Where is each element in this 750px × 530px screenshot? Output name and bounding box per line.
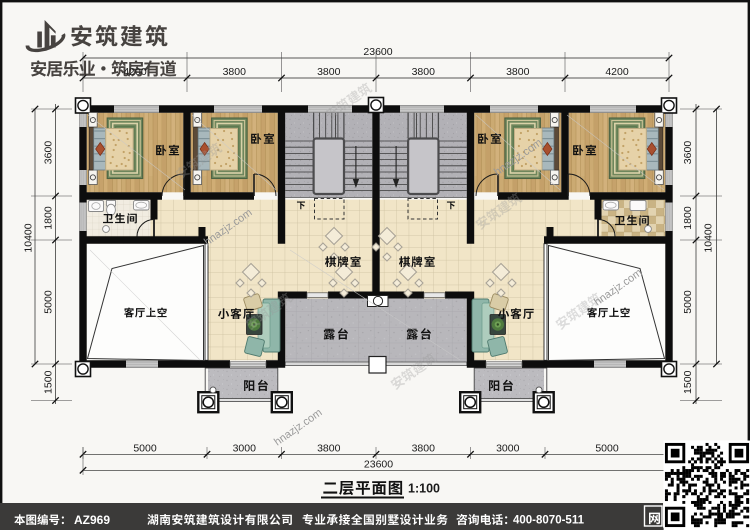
svg-text:1500: 1500	[682, 370, 694, 394]
svg-text:1:100: 1:100	[408, 482, 440, 496]
svg-text:10400: 10400	[23, 223, 35, 252]
svg-text:3800: 3800	[506, 66, 530, 78]
svg-text:3000: 3000	[496, 443, 520, 455]
svg-text:3800: 3800	[412, 443, 436, 455]
svg-text:400-8070-511: 400-8070-511	[513, 515, 585, 527]
svg-text:3800: 3800	[412, 66, 436, 78]
svg-text:4200: 4200	[605, 66, 629, 78]
svg-text:3600: 3600	[43, 141, 55, 165]
svg-text:1500: 1500	[43, 370, 55, 394]
svg-text:1800: 1800	[43, 206, 55, 230]
svg-text:3800: 3800	[317, 443, 341, 455]
svg-text:3800: 3800	[223, 66, 247, 78]
svg-text:23600: 23600	[363, 46, 392, 58]
svg-text:10400: 10400	[703, 223, 715, 252]
svg-text:3000: 3000	[233, 443, 257, 455]
svg-text:1800: 1800	[682, 206, 694, 230]
svg-text:5000: 5000	[595, 443, 619, 455]
svg-text:4200: 4200	[123, 66, 147, 78]
svg-text:3600: 3600	[682, 141, 694, 165]
svg-text:5000: 5000	[682, 290, 694, 314]
svg-text:3800: 3800	[317, 66, 341, 78]
svg-text:5000: 5000	[133, 443, 157, 455]
svg-text:23600: 23600	[364, 459, 393, 471]
svg-text:AZ969: AZ969	[74, 513, 110, 527]
svg-text:5000: 5000	[43, 290, 55, 314]
